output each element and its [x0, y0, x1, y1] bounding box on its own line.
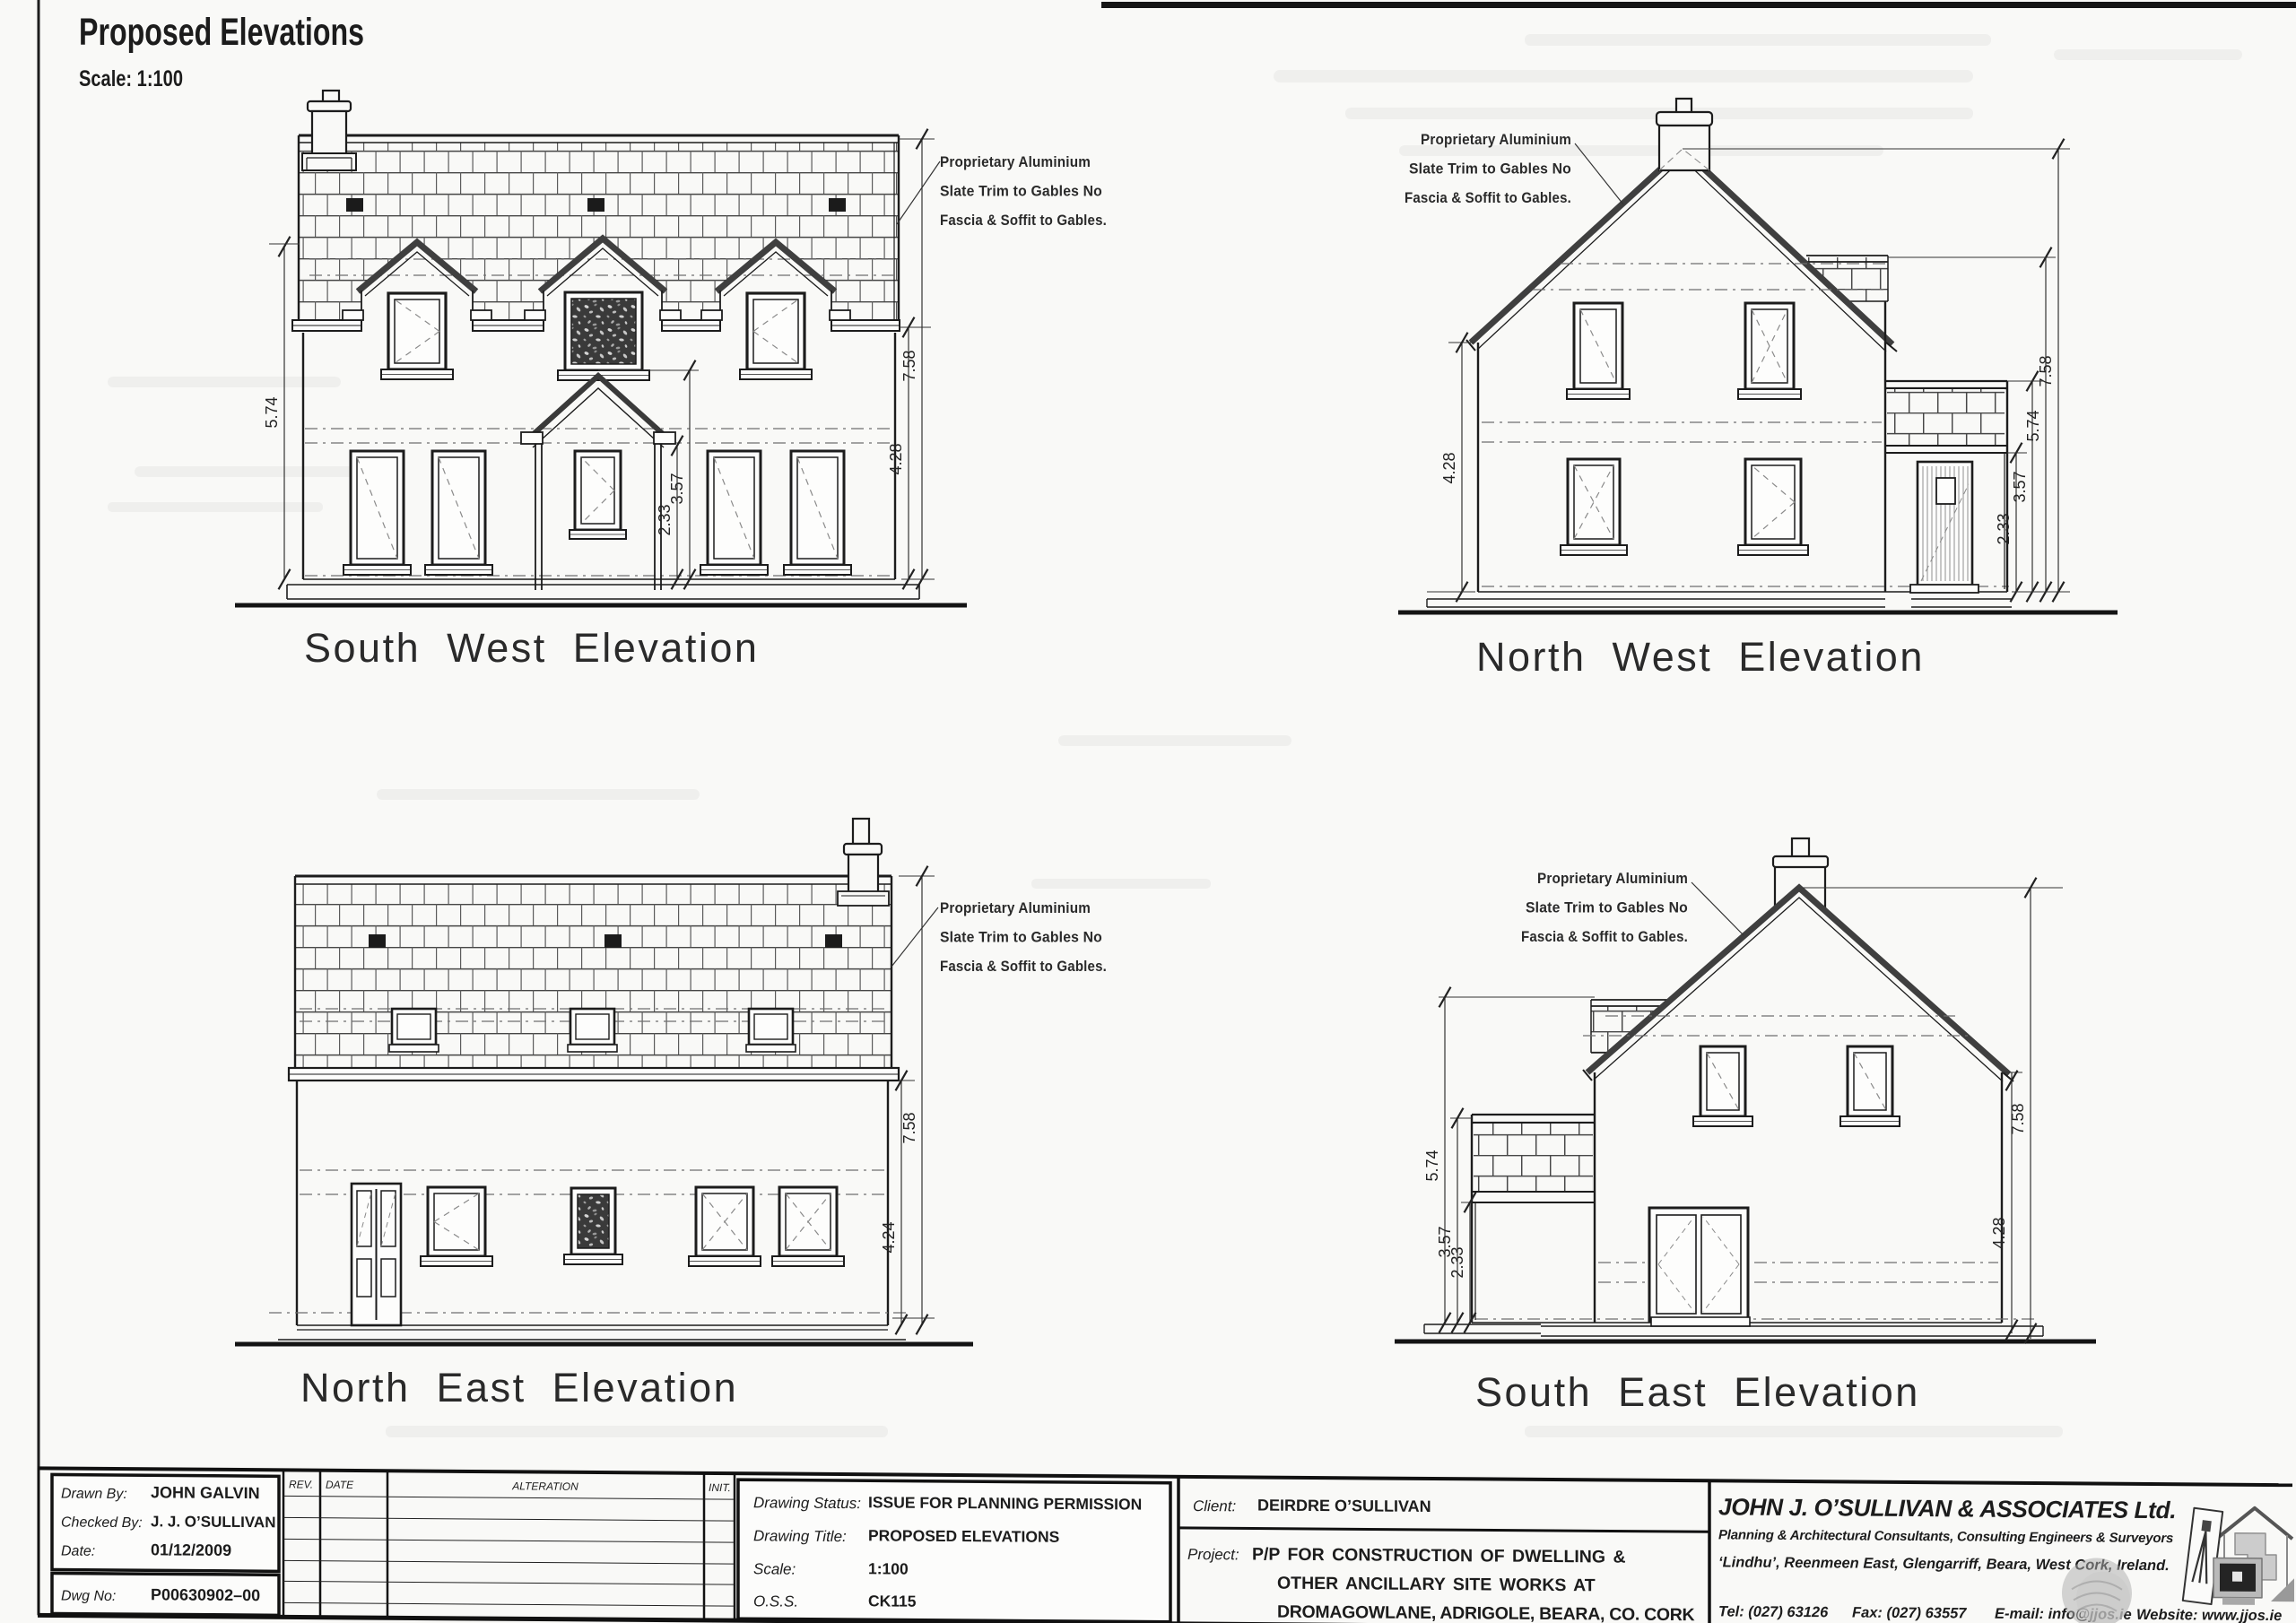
- svg-text:ISSUE FOR PLANNING PERMISSI: ISSUE FOR PLANNING PERMISSION: [868, 1493, 1142, 1513]
- svg-text:5.74: 5.74: [263, 396, 281, 428]
- svg-text:JOHN J. O’SULLIVAN & ASSOCIATE: JOHN J. O’SULLIVAN & ASSOCIATES Ltd.: [1718, 1493, 2176, 1523]
- svg-text:Fascia & Soffit to Gables.: Fascia & Soffit to Gables.: [940, 213, 1107, 229]
- svg-text:Dwg No:: Dwg No:: [61, 1589, 116, 1604]
- svg-text:DEIRDRE O’SULLIVAN: DEIRDRE O’SULLIVAN: [1257, 1497, 1431, 1515]
- svg-text:2.33: 2.33: [1995, 513, 2013, 544]
- svg-text:2.33: 2.33: [656, 504, 674, 535]
- svg-text:OTHER ANCILLARY SITE WORKS: OTHER ANCILLARY SITE WORKS AT: [1277, 1574, 1596, 1596]
- svg-text:7.58: 7.58: [900, 350, 918, 381]
- svg-text:Fascia & Soffit to Gables.: Fascia & Soffit to Gables.: [940, 959, 1107, 975]
- svg-text:Project:: Project:: [1187, 1546, 1239, 1563]
- svg-text:Slate Trim to Gables No: Slate Trim to Gables No: [1526, 900, 1688, 916]
- svg-text:North East Elevation: North East Elevation: [300, 1365, 738, 1410]
- svg-text:Client:: Client:: [1193, 1497, 1236, 1515]
- svg-text:Slate Trim to Gables No: Slate Trim to Gables No: [1409, 161, 1571, 178]
- svg-text:Fascia & Soffit to Gables.: Fascia & Soffit to Gables.: [1405, 190, 1571, 206]
- svg-text:Slate Trim to Gables No: Slate Trim to Gables No: [940, 930, 1102, 946]
- svg-text:Scale:: Scale:: [753, 1560, 796, 1577]
- svg-text:INIT.: INIT.: [709, 1481, 731, 1494]
- svg-text:Proprietary Aluminium: Proprietary Aluminium: [1421, 132, 1571, 148]
- svg-text:4.28: 4.28: [887, 443, 905, 474]
- svg-text:CK115: CK115: [868, 1592, 917, 1610]
- svg-text:4.28: 4.28: [1440, 452, 1458, 483]
- svg-text:5.74: 5.74: [1423, 1150, 1441, 1181]
- svg-text:1:100: 1:100: [868, 1559, 909, 1577]
- svg-text:DATE: DATE: [326, 1479, 354, 1491]
- svg-text:Proprietary Aluminium: Proprietary Aluminium: [940, 154, 1091, 170]
- svg-text:Slate Trim to Gables No: Slate Trim to Gables No: [940, 184, 1102, 200]
- svg-text:Proposed Elevations: Proposed Elevations: [79, 11, 364, 54]
- svg-text:J. J. O’SULLIVAN: J. J. O’SULLIVAN: [151, 1513, 275, 1531]
- svg-text:P00630902–00: P00630902–00: [151, 1585, 260, 1604]
- svg-text:South West Elevation: South West Elevation: [304, 625, 759, 671]
- svg-text:ALTERATION: ALTERATION: [511, 1480, 578, 1493]
- svg-text:Scale: 1:100: Scale: 1:100: [79, 66, 183, 91]
- svg-text:Drawing Status:: Drawing Status:: [753, 1494, 861, 1512]
- svg-text:5.74: 5.74: [2024, 410, 2042, 441]
- svg-text:2.33: 2.33: [1448, 1246, 1466, 1278]
- svg-text:7.58: 7.58: [900, 1112, 918, 1143]
- svg-text:4.24: 4.24: [880, 1221, 898, 1253]
- svg-text:Planning & Architectural Consu: Planning & Architectural Consultants, Co…: [1718, 1527, 2173, 1546]
- svg-text:DROMAGOWLANE, ADRIGOLE, BEAR: DROMAGOWLANE, ADRIGOLE, BEARA, CO. CORK: [1277, 1602, 1695, 1623]
- svg-text:Proprietary Aluminium: Proprietary Aluminium: [1537, 871, 1688, 887]
- svg-text:01/12/2009: 01/12/2009: [151, 1541, 231, 1559]
- svg-text:REV.: REV.: [289, 1478, 313, 1490]
- svg-text:4.28: 4.28: [1990, 1217, 2008, 1248]
- svg-text:JOHN GALVIN: JOHN GALVIN: [151, 1483, 260, 1502]
- svg-text:Website: www.jjos.ie: Website: www.jjos.ie: [2136, 1607, 2282, 1623]
- svg-text:South East Elevation: South East Elevation: [1475, 1369, 1920, 1415]
- svg-text:PROPOSED ELEVATIONS: PROPOSED ELEVATIONS: [868, 1526, 1059, 1546]
- svg-text:Tel: (027) 63126: Tel: (027) 63126: [1718, 1603, 1829, 1620]
- svg-text:Checked By:: Checked By:: [61, 1515, 143, 1532]
- svg-text:Fascia & Soffit to Gables.: Fascia & Soffit to Gables.: [1521, 929, 1688, 945]
- svg-text:Proprietary Aluminium: Proprietary Aluminium: [940, 900, 1091, 916]
- svg-text:P/P FOR CONSTRUCTION OF DW: P/P FOR CONSTRUCTION OF DWELLING &: [1252, 1544, 1626, 1567]
- svg-text:3.57: 3.57: [2011, 471, 2029, 502]
- svg-text:O.S.S.: O.S.S.: [753, 1593, 798, 1610]
- svg-text:7.58: 7.58: [2037, 355, 2055, 386]
- svg-text:Drawing Title:: Drawing Title:: [753, 1527, 847, 1545]
- svg-text:Drawn By:: Drawn By:: [61, 1487, 127, 1503]
- svg-text:Date:: Date:: [61, 1544, 95, 1559]
- svg-text:Fax: (027) 63557: Fax: (027) 63557: [1852, 1604, 1967, 1621]
- svg-text:North West Elevation: North West Elevation: [1476, 634, 1925, 680]
